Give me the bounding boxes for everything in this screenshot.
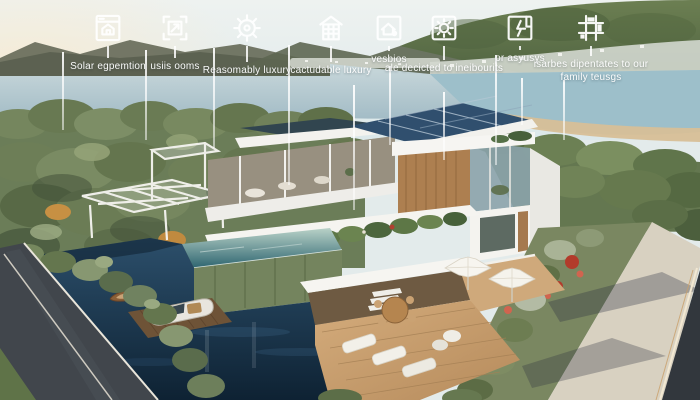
callout-stub: [174, 46, 176, 58]
callout-label: isarbes dipentates to our family teusgs: [531, 58, 651, 84]
callout-line: [563, 80, 565, 140]
callout-line: [62, 52, 64, 130]
callout-label: Solar egpemtion: [70, 60, 146, 73]
callout-rooms: usiis ooms: [143, 11, 207, 73]
callout-line: [353, 85, 355, 210]
callout-label: ale decicted to ineibourits: [385, 62, 503, 75]
modular-blocks-icon: [574, 11, 608, 45]
callout-line: [389, 66, 391, 145]
callout-stub: [443, 46, 445, 60]
sun-square-icon: [427, 11, 461, 45]
window-frame-arrow-icon: [158, 11, 192, 45]
callout-luxury-1: Reasomably luxury: [199, 11, 295, 77]
callout-stub: [330, 46, 332, 62]
callout-stub: [590, 46, 592, 56]
callout-stub: [246, 46, 248, 62]
callout-solar: Solar egpemtion: [66, 11, 150, 73]
callout-stub: [519, 46, 521, 50]
callout-family: isarbes dipentates to our family teusgs: [531, 11, 651, 84]
blueprint-house-icon: [91, 11, 125, 45]
apartment-building-icon: [314, 11, 348, 45]
callout-stub: [107, 46, 109, 58]
callout-line: [443, 92, 445, 160]
wheel-gear-icon: [230, 11, 264, 45]
callout-neighbours: ale decicted to ineibourits: [384, 11, 504, 75]
annotation-overlay: Solar egpemtion usiis ooms Reasomably lu…: [0, 0, 700, 400]
callout-label: Reasomably luxury: [203, 64, 291, 77]
callout-label: usiis ooms: [150, 60, 199, 73]
hero-image: Solar egpemtion usiis ooms Reasomably lu…: [0, 0, 700, 400]
callout-line: [521, 78, 523, 125]
